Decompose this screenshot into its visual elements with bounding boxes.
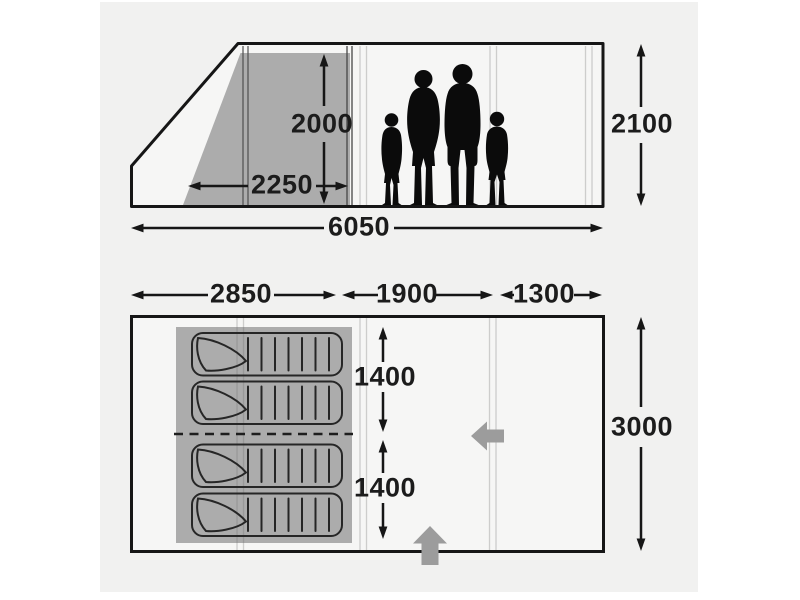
dim-label-canopy-length: 1300 (513, 281, 575, 308)
dim-label-sleeping-width-lower: 1400 (354, 475, 416, 502)
dim-label-total-length: 6050 (328, 214, 390, 241)
dim-label-inner-height: 2000 (291, 111, 353, 138)
dim-label-total-height: 2100 (611, 111, 673, 138)
dim-label-living-length: 1900 (376, 281, 438, 308)
floor-plan-diagram (131, 291, 645, 565)
dim-label-inner-width: 2250 (251, 172, 313, 199)
dim-label-sleeping-width-upper: 1400 (354, 364, 416, 391)
dim-label-sleeping-length: 2850 (210, 281, 272, 308)
sleeping-area-shaded (176, 327, 352, 543)
side-view-diagram (131, 44, 645, 233)
dim-label-total-width: 3000 (611, 414, 673, 441)
tent-dimension-diagram: 2000 2250 6050 2100 2850 1900 1300 1400 … (0, 0, 800, 600)
